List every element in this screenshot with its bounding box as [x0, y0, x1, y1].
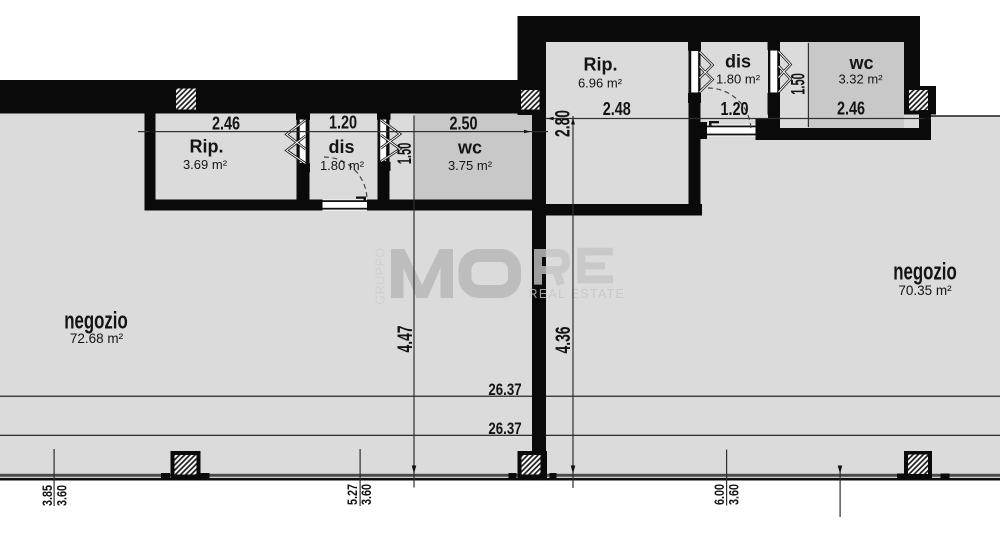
svg-text:2.48: 2.48	[603, 98, 631, 119]
svg-text:wc: wc	[457, 138, 482, 158]
svg-text:26.37: 26.37	[488, 420, 521, 439]
svg-text:2.80: 2.80	[551, 110, 575, 137]
svg-text:dis: dis	[725, 52, 751, 72]
svg-text:2.50: 2.50	[449, 113, 477, 134]
svg-text:4.36: 4.36	[551, 326, 575, 353]
svg-text:3.69 m²: 3.69 m²	[183, 157, 228, 172]
svg-text:1.50: 1.50	[789, 73, 810, 95]
svg-text:6.00: 6.00	[712, 484, 728, 505]
svg-text:1.20: 1.20	[720, 98, 748, 119]
svg-text:negozio: negozio	[893, 259, 956, 286]
svg-text:1.80 m²: 1.80 m²	[716, 72, 761, 87]
svg-text:4.47: 4.47	[393, 325, 417, 352]
svg-text:2.46: 2.46	[837, 98, 865, 119]
svg-text:3.32 m²: 3.32 m²	[838, 72, 883, 87]
svg-text:3.60: 3.60	[54, 485, 70, 506]
svg-text:70.35 m²: 70.35 m²	[898, 283, 952, 298]
svg-text:Rip.: Rip.	[190, 137, 224, 157]
svg-text:Rip.: Rip.	[584, 55, 618, 75]
svg-text:72.68 m²: 72.68 m²	[70, 331, 124, 346]
svg-text:dis: dis	[328, 137, 354, 157]
svg-text:2.46: 2.46	[212, 113, 240, 134]
svg-text:wc: wc	[848, 53, 873, 73]
svg-text:3.60: 3.60	[359, 484, 375, 505]
svg-text:6.96 m²: 6.96 m²	[578, 76, 623, 91]
svg-text:3.60: 3.60	[726, 484, 742, 505]
svg-text:26.37: 26.37	[488, 380, 521, 399]
svg-text:GRUPPO: GRUPPO	[373, 247, 387, 304]
svg-text:1.80 m²: 1.80 m²	[320, 158, 365, 173]
svg-text:1.50: 1.50	[395, 143, 416, 165]
svg-text:3.75 m²: 3.75 m²	[448, 158, 493, 173]
svg-text:1.20: 1.20	[329, 112, 357, 133]
svg-text:3.85: 3.85	[40, 485, 56, 506]
svg-text:REAL ESTATE: REAL ESTATE	[529, 287, 626, 301]
